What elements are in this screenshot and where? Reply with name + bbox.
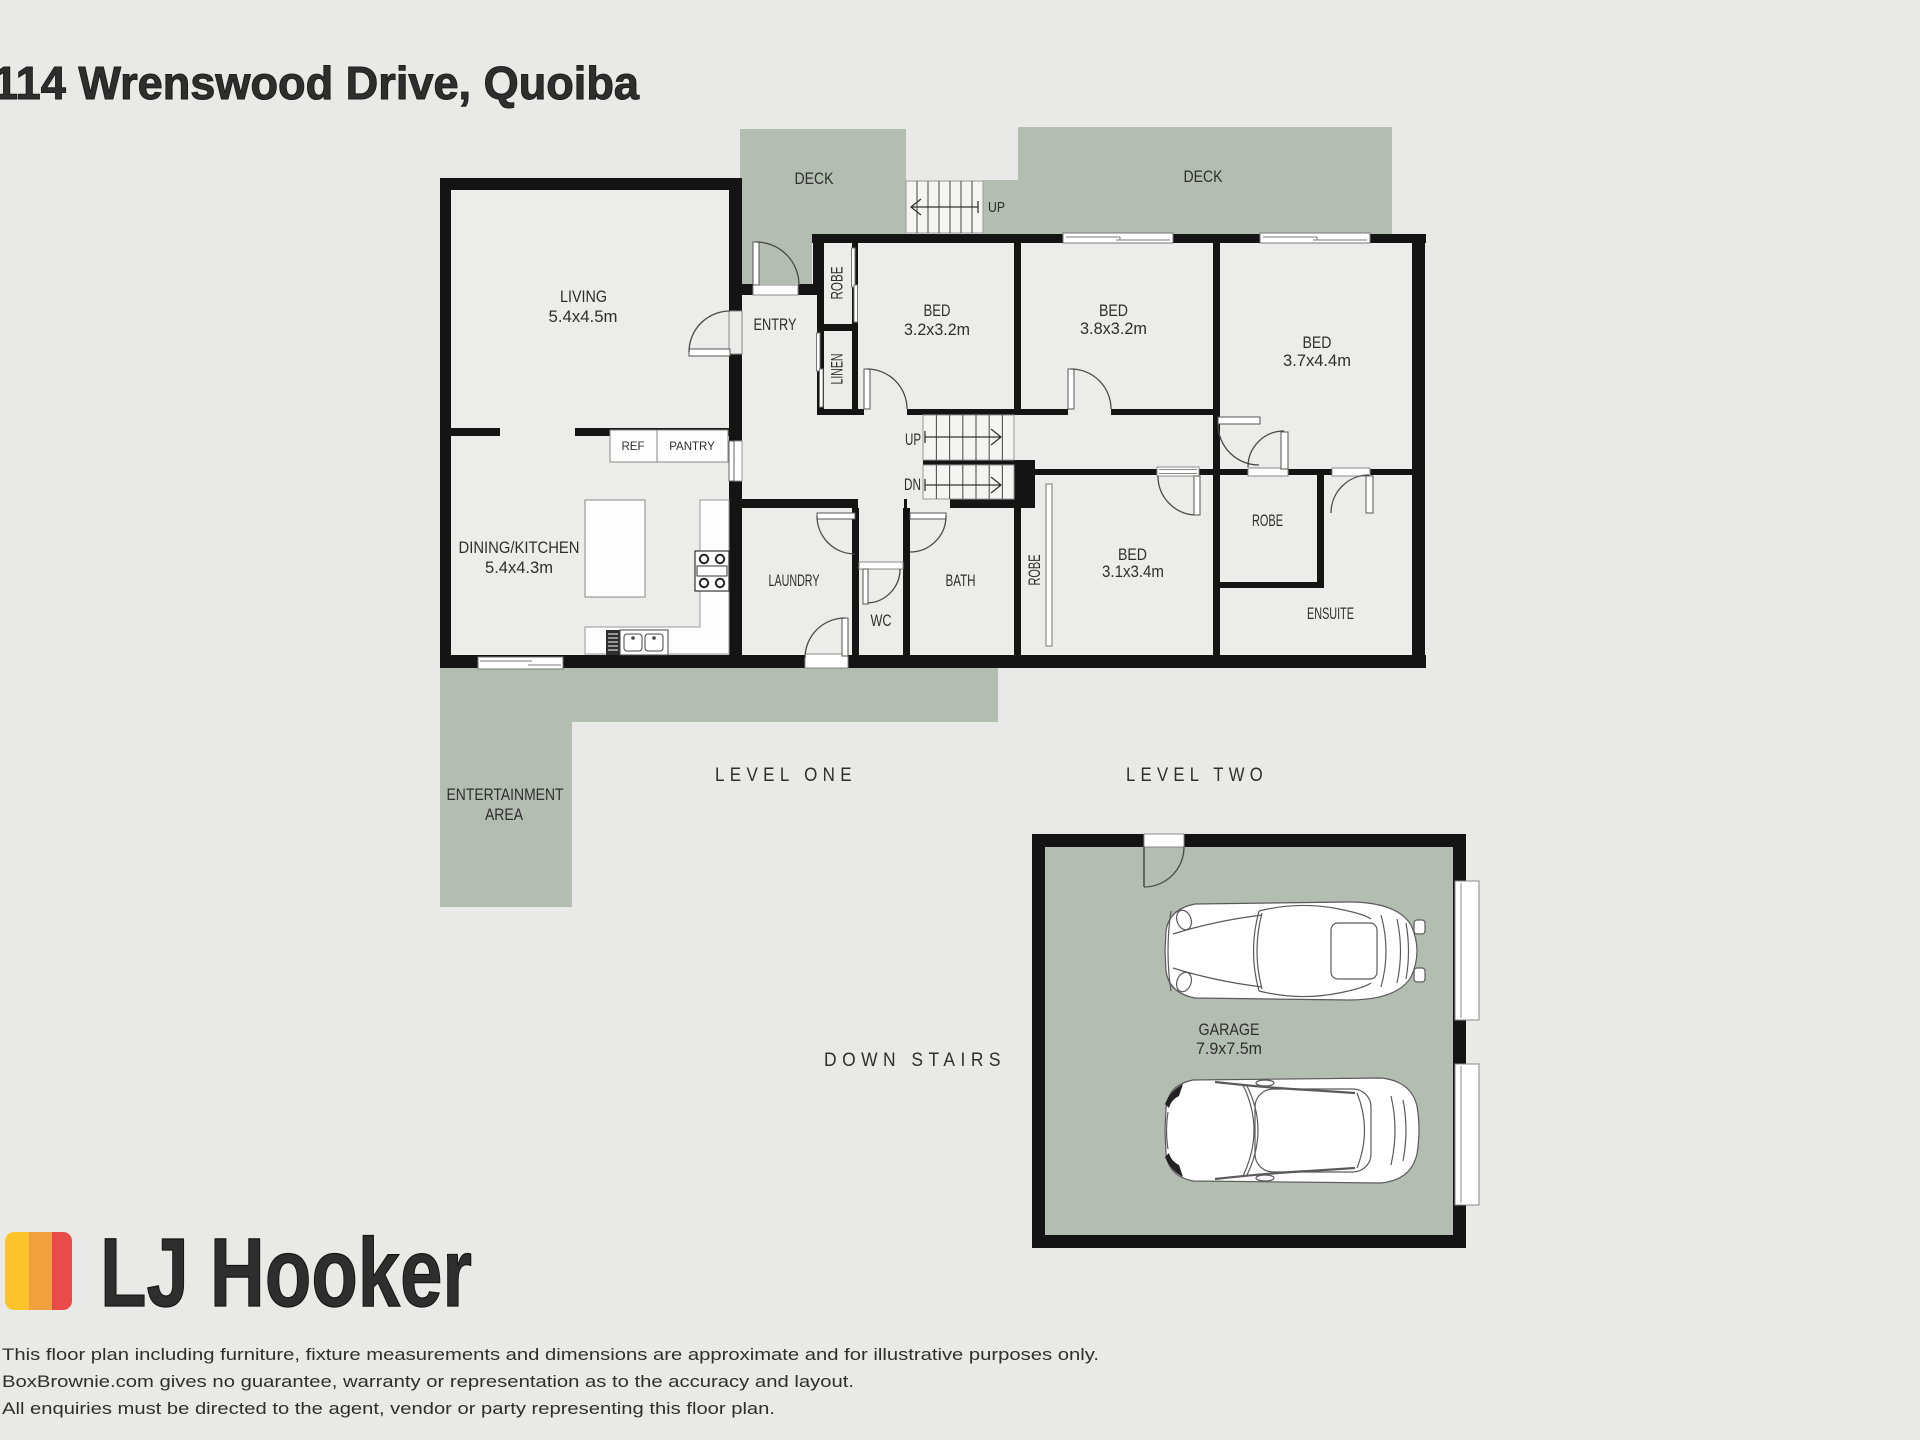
svg-text:LINEN: LINEN (828, 354, 847, 385)
svg-text:BED: BED (924, 301, 951, 320)
svg-text:DECK: DECK (795, 169, 835, 188)
svg-text:3.8x3.2m: 3.8x3.2m (1080, 319, 1147, 338)
svg-text:3.2x3.2m: 3.2x3.2m (904, 320, 970, 339)
svg-text:DN: DN (904, 475, 921, 494)
svg-text:BED: BED (1099, 301, 1128, 320)
svg-text:ROBE: ROBE (1252, 511, 1283, 530)
svg-text:DOWN STAIRS: DOWN STAIRS (824, 1050, 1006, 1071)
svg-text:3.7x4.4m: 3.7x4.4m (1283, 351, 1351, 370)
svg-text:All enquiries must be directed: All enquiries must be directed to the ag… (2, 1399, 775, 1418)
svg-text:ENSUITE: ENSUITE (1307, 604, 1354, 623)
svg-text:114 Wrenswood Drive, Quoiba: 114 Wrenswood Drive, Quoiba (0, 57, 639, 109)
svg-text:UP: UP (905, 430, 921, 449)
svg-text:DINING/KITCHEN: DINING/KITCHEN (459, 538, 580, 557)
svg-text:PANTRY: PANTRY (669, 441, 715, 453)
svg-text:7.9x7.5m: 7.9x7.5m (1196, 1039, 1262, 1058)
svg-text:WC: WC (871, 611, 892, 630)
svg-text:BED: BED (1303, 333, 1332, 352)
svg-text:BoxBrownie.com gives no guaran: BoxBrownie.com gives no guarantee, warra… (2, 1372, 854, 1391)
svg-text:LIVING: LIVING (560, 287, 607, 306)
svg-text:3.1x3.4m: 3.1x3.4m (1102, 562, 1164, 581)
svg-text:LJ Hooker: LJ Hooker (100, 1218, 472, 1327)
svg-text:ROBE: ROBE (828, 267, 847, 300)
svg-text:AREA: AREA (485, 805, 524, 824)
svg-text:5.4x4.5m: 5.4x4.5m (549, 307, 618, 326)
svg-text:This floor plan including furn: This floor plan including furniture, fix… (2, 1345, 1099, 1364)
svg-text:ROBE: ROBE (1025, 555, 1044, 586)
svg-text:REF: REF (622, 441, 645, 453)
svg-text:ENTERTAINMENT: ENTERTAINMENT (447, 785, 564, 804)
svg-text:LEVEL TWO: LEVEL TWO (1126, 765, 1268, 786)
svg-text:GARAGE: GARAGE (1199, 1020, 1260, 1039)
svg-text:DECK: DECK (1184, 167, 1224, 186)
svg-text:5.4x4.3m: 5.4x4.3m (485, 558, 553, 577)
svg-text:UP: UP (988, 199, 1005, 216)
svg-text:ENTRY: ENTRY (754, 315, 797, 334)
svg-text:LAUNDRY: LAUNDRY (769, 571, 820, 590)
svg-text:LEVEL ONE: LEVEL ONE (715, 765, 857, 786)
svg-text:BATH: BATH (946, 571, 976, 590)
